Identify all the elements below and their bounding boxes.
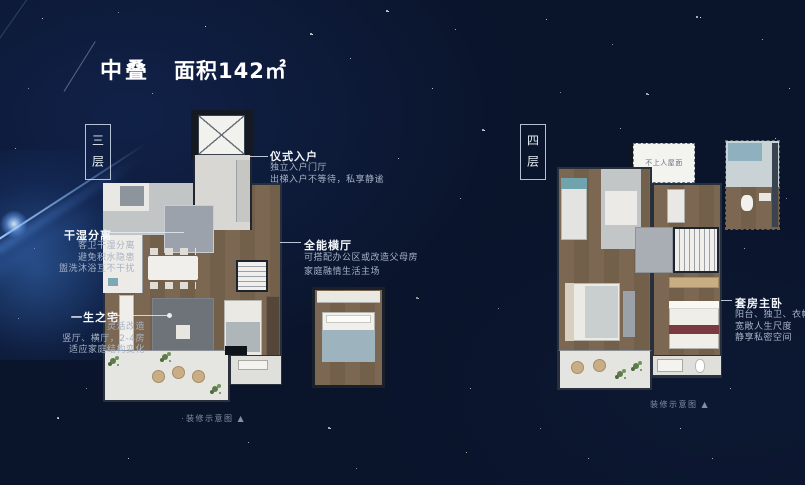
annotation-line: 灵活改造 <box>35 322 145 334</box>
lounge-chair <box>152 370 165 383</box>
bed-pillows <box>669 301 719 309</box>
bed-blanket <box>585 286 618 338</box>
lounge-chair <box>172 366 185 379</box>
entry-closet <box>236 160 250 222</box>
floorplan-fourth-floor: 不上人屋面 <box>545 133 795 395</box>
unit-area-label: 面积142㎡ <box>174 59 287 83</box>
annotation-entry-body: 独立入户门厅 出梯入户不等待，私享静谧 <box>270 163 384 186</box>
bed-runner <box>669 325 719 334</box>
lounge-chair <box>571 361 584 374</box>
rug <box>623 291 635 337</box>
annotation-line: 宽敞人生尺度 <box>735 322 805 334</box>
sink <box>108 278 118 286</box>
lounge-chair <box>593 359 606 372</box>
plan-caption-left: 装修示意图 ▲ <box>186 413 245 424</box>
curtain-strip <box>772 143 778 227</box>
annotation-line: 盥洗沐浴互不干扰 <box>25 264 135 276</box>
stair-landing <box>635 227 673 273</box>
bed-pillows <box>326 315 371 323</box>
annotation-lifetime-body: 灵活改造 竖厅、横厅，2-4房 适应家庭结构变化 <box>35 322 145 357</box>
dining-table <box>148 256 198 280</box>
floorplan-marketing-page: 中叠面积142㎡ 三层 四层 <box>0 0 805 485</box>
annotation-drywet-body: 客卫干湿分离 避免积水隐患 盥洗沐浴互不干扰 <box>25 241 135 276</box>
laundry-zone <box>120 186 144 206</box>
comet-core <box>0 210 28 238</box>
annotation-line: 阳台、独卫、衣帽间 <box>735 310 805 322</box>
leader-line-lifetime <box>112 315 168 316</box>
headboard <box>565 283 574 341</box>
plan-caption-right: 装修示意图 ▲ <box>650 399 709 410</box>
annotation-entry-title: 仪式入户 <box>270 148 318 164</box>
toilet <box>695 359 705 373</box>
sink <box>759 193 771 201</box>
annotation-hall-title: 全能横厅 <box>304 237 352 253</box>
dining-chairs <box>150 282 196 289</box>
desk <box>667 189 685 223</box>
annotation-line: 客卫干湿分离 <box>25 241 135 253</box>
annotation-line: 避免积水隐患 <box>25 253 135 265</box>
leader-line-hall <box>280 242 301 243</box>
bed-blanket <box>322 330 375 362</box>
coffee-table <box>176 325 190 339</box>
lounge-chair <box>192 370 205 383</box>
elevator-cab <box>198 115 245 155</box>
master-wardrobe <box>669 277 719 288</box>
annotation-line: 家庭融情生活主场 <box>304 266 418 280</box>
staircase <box>236 260 268 292</box>
dining-chairs <box>150 248 196 255</box>
annotation-line: 静享私密空间 <box>735 333 805 345</box>
annotation-line: 可搭配办公区或改造父母房 <box>304 252 418 266</box>
annotation-hall-body: 可搭配办公区或改造父母房 家庭融情生活主场 <box>304 252 418 279</box>
plant <box>110 358 116 364</box>
plant <box>633 363 639 369</box>
staircase <box>673 227 719 273</box>
plant <box>617 371 623 377</box>
bed <box>728 143 762 161</box>
annotation-line: 独立入户门厅 <box>270 163 384 175</box>
leader-dot <box>167 313 172 318</box>
leader-line-entry <box>249 156 268 157</box>
annotation-master-title: 套房主卧 <box>735 295 783 311</box>
annotation-master-body: 阳台、独卫、衣帽间 宽敞人生尺度 静享私密空间 <box>735 310 805 345</box>
leader-line-master <box>721 300 732 301</box>
annotation-line: 适应家庭结构变化 <box>35 345 145 357</box>
toilet <box>741 195 753 211</box>
tatami-room <box>164 205 214 253</box>
bathtub <box>657 359 683 372</box>
floor-tag-fourth: 四层 <box>520 124 546 180</box>
plant <box>212 386 218 392</box>
wardrobe <box>317 291 380 303</box>
plant <box>162 354 168 360</box>
shower-area <box>605 191 637 225</box>
wall-segment <box>225 346 247 355</box>
annotation-line: 出梯入户不等待，私享静谧 <box>270 175 384 187</box>
unit-type-label: 中叠 <box>100 59 150 84</box>
leader-line-drywet <box>108 232 184 233</box>
bed-pillow <box>561 178 587 189</box>
annotation-line: 竖厅、横厅，2-4房 <box>35 334 145 346</box>
page-title: 中叠面积142㎡ <box>100 53 287 85</box>
bathtub <box>238 360 268 370</box>
